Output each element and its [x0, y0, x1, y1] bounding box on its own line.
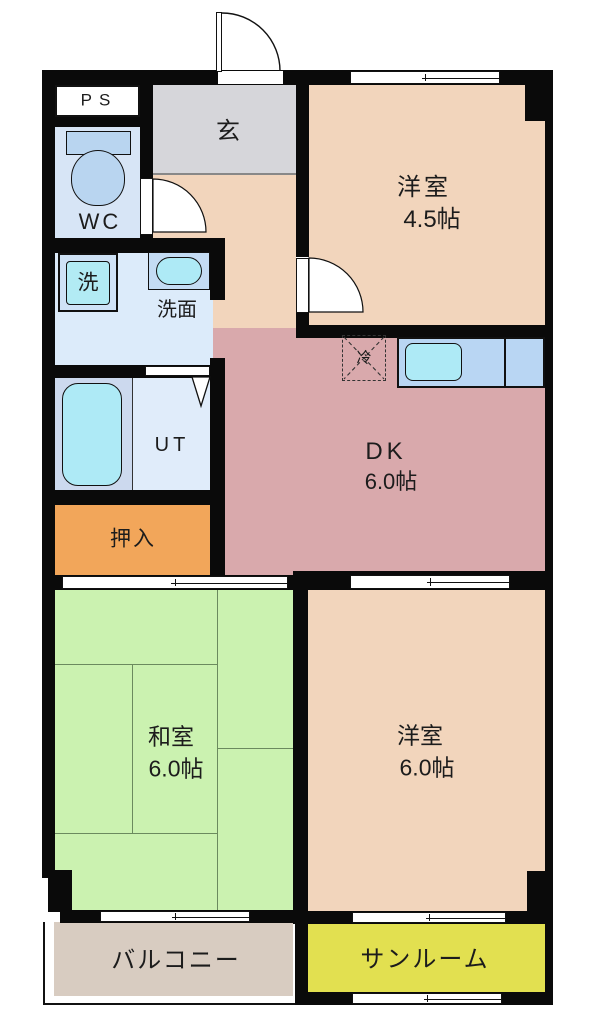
wall-western6-west	[293, 575, 308, 913]
wall-genkan-east-upper	[296, 85, 309, 257]
room-western-4-5	[309, 85, 545, 325]
wall-wc-east-upper	[140, 85, 153, 180]
wall-bath-bottom	[42, 490, 225, 505]
label-oshiire: 押入	[110, 529, 156, 550]
wall-right	[545, 70, 553, 1005]
tatami-line	[55, 664, 217, 665]
label-balcony: バルコニー	[111, 949, 241, 973]
entry-doorway	[218, 71, 283, 84]
label-japanese-6: 和室	[148, 726, 194, 749]
window-japanese-balcony	[100, 911, 250, 922]
window-western6-sunroom	[352, 912, 506, 923]
label-wc: WC	[79, 211, 122, 233]
room-japanese-6	[55, 590, 293, 910]
slider-dk-western6	[350, 575, 510, 589]
label-washroom: 洗面	[157, 300, 197, 320]
floorplan: PS 玄 WC 洗 洗面 UT 押入 冷 DK 6.0帖 洋室 4.5帖 和室 …	[0, 0, 600, 1020]
label-ut: UT	[155, 435, 190, 455]
wc-door-leaf	[140, 178, 153, 235]
label-western-4-5-size: 4.5帖	[403, 208, 460, 232]
toilet-bowl	[71, 150, 125, 206]
kitchen-counter-divider	[504, 337, 506, 388]
label-fridge: 冷	[356, 351, 371, 366]
wall-ut-east	[210, 358, 225, 590]
label-ps: PS	[81, 92, 118, 109]
room-western-6	[308, 590, 545, 911]
label-japanese-6-size: 6.0帖	[149, 758, 204, 781]
wall-washroom-top	[42, 238, 225, 253]
entry-door-leaf	[216, 12, 222, 72]
label-dk-size: 6.0帖	[365, 471, 418, 493]
wall-notch-top-right	[525, 85, 553, 121]
washbasin-bowl	[156, 257, 202, 285]
ut-door-opening	[145, 366, 210, 376]
tatami-line	[217, 748, 293, 749]
western-4-5-door-leaf	[296, 258, 309, 313]
fusuma-oshiire-japanese	[62, 576, 288, 589]
entry-door-arc	[222, 13, 280, 71]
tatami-line	[217, 590, 218, 910]
label-western-4-5: 洋室	[397, 176, 451, 200]
label-dk: DK	[365, 440, 406, 464]
tatami-line	[132, 664, 133, 833]
wall-washroom-east	[210, 238, 225, 300]
wall-left	[42, 70, 55, 878]
kitchen-sink	[405, 343, 462, 381]
label-washer: 洗	[78, 273, 99, 294]
window-sunroom-outer	[352, 993, 502, 1004]
label-western-6: 洋室	[397, 725, 443, 748]
wall-notch-bottom-left	[48, 870, 72, 912]
wall-notch-bottom-right	[527, 871, 548, 913]
wall-balcony-sunroom	[295, 911, 308, 1005]
bathtub	[62, 383, 122, 486]
tatami-line	[55, 833, 217, 834]
hallway-upper	[140, 175, 296, 238]
bath-ut-divider	[132, 378, 133, 490]
label-western-6-size: 6.0帖	[400, 757, 455, 780]
label-sunroom: サンルーム	[360, 948, 489, 972]
label-genkan: 玄	[216, 120, 240, 144]
window-western-4-5	[350, 71, 500, 84]
